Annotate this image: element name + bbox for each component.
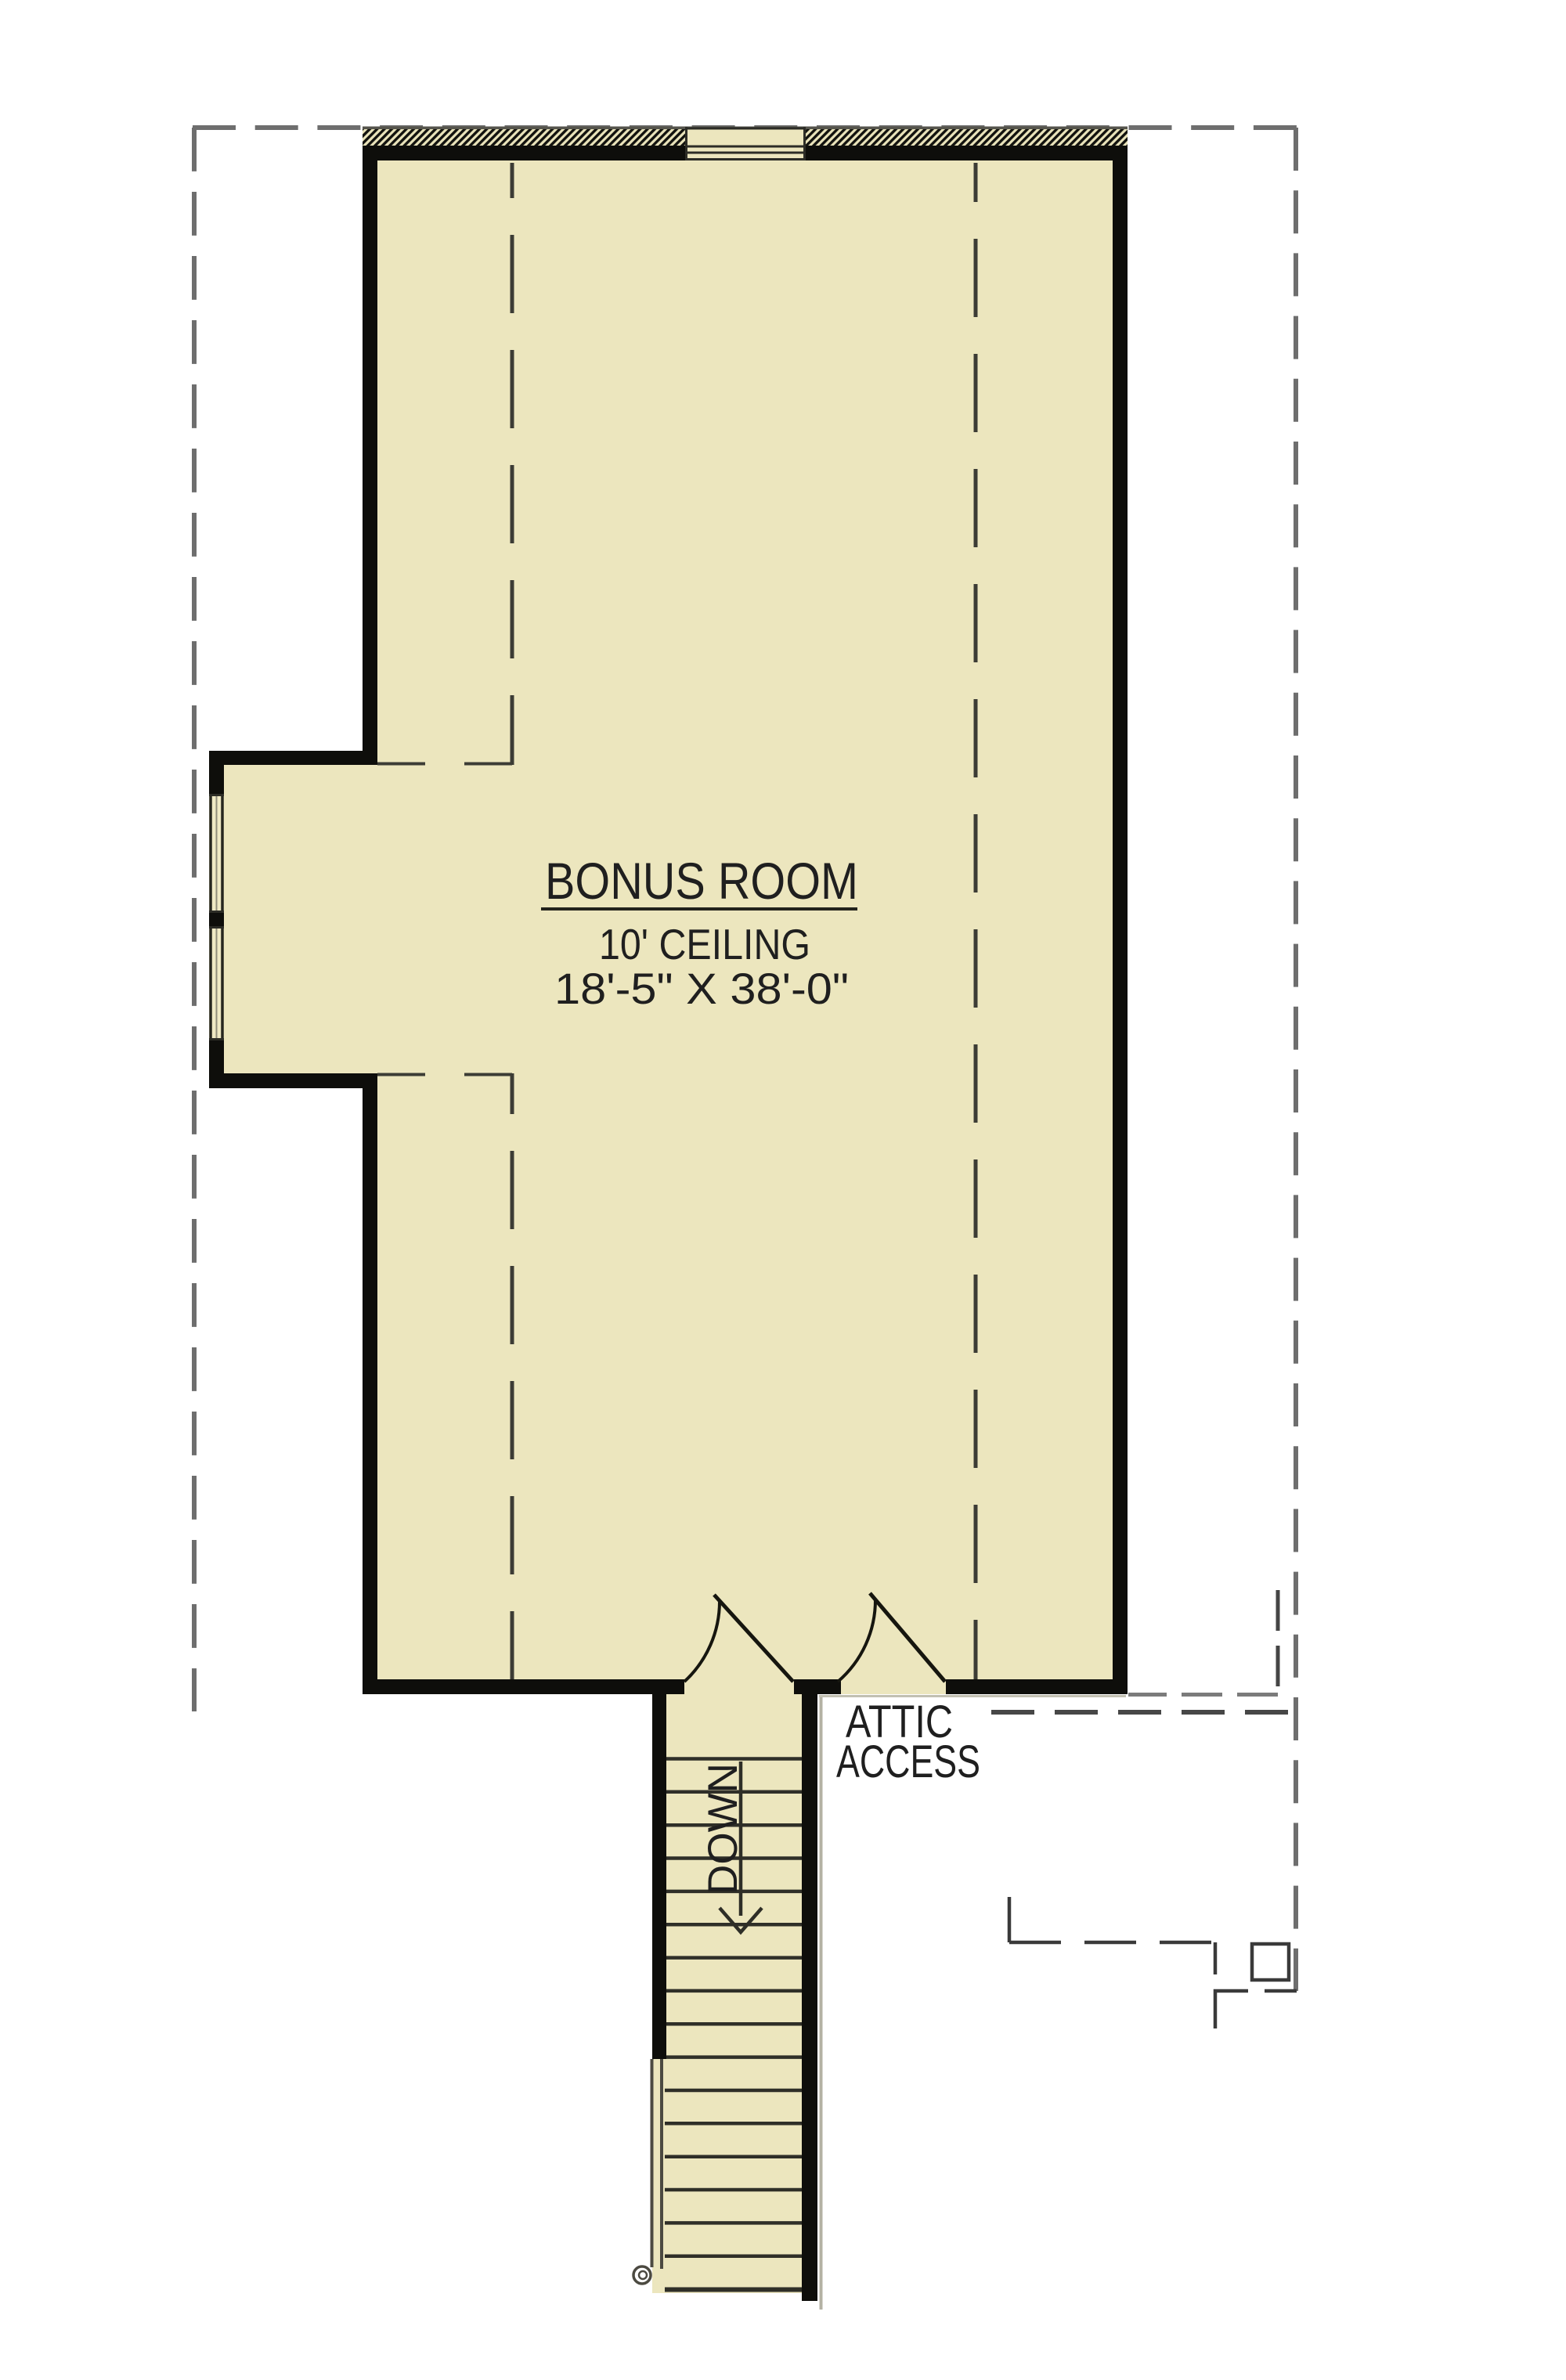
svg-text:DOWN: DOWN — [700, 1763, 746, 1895]
svg-text:10' CEILING: 10' CEILING — [599, 920, 810, 968]
svg-text:ACCESS: ACCESS — [836, 1736, 980, 1787]
svg-text:18'-5" X 38'-0": 18'-5" X 38'-0" — [554, 964, 849, 1013]
svg-text:BONUS ROOM: BONUS ROOM — [545, 852, 858, 910]
